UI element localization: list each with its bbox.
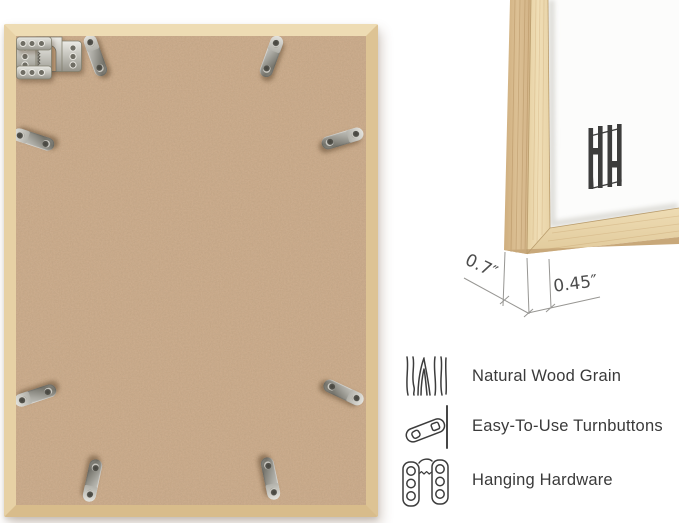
hanging-bracket-icon <box>16 36 52 80</box>
turnbutton-icon <box>399 404 453 450</box>
backing-texture <box>16 36 366 505</box>
frame-back-view <box>4 24 378 517</box>
feature-label: Hanging Hardware <box>472 471 613 490</box>
feature-wood-grain: Natural Wood Grain <box>399 352 621 400</box>
hanging-hardware-glyph <box>401 452 451 508</box>
product-infographic: 0.7″ 0.45″ Natural Wood Grain <box>0 0 679 523</box>
turnbutton-glyph <box>399 404 453 450</box>
face-dimension-label: 0.45″ <box>552 271 598 296</box>
mat-board <box>548 0 679 228</box>
frame-side-profile <box>504 0 531 254</box>
depth-dimension-label: 0.7″ <box>462 250 501 283</box>
hanging-hardware-icon <box>399 452 453 508</box>
wood-grain-glyph <box>403 356 449 396</box>
feature-turnbuttons: Easy-To-Use Turnbuttons <box>399 402 663 451</box>
feature-hanging-hardware: Hanging Hardware <box>399 451 613 509</box>
feature-label: Easy-To-Use Turnbuttons <box>472 417 663 436</box>
corner-detail-view: 0.7″ 0.45″ <box>430 0 679 340</box>
feature-label: Natural Wood Grain <box>472 367 621 386</box>
wood-grain-icon <box>399 356 453 396</box>
backing-board <box>16 36 366 505</box>
